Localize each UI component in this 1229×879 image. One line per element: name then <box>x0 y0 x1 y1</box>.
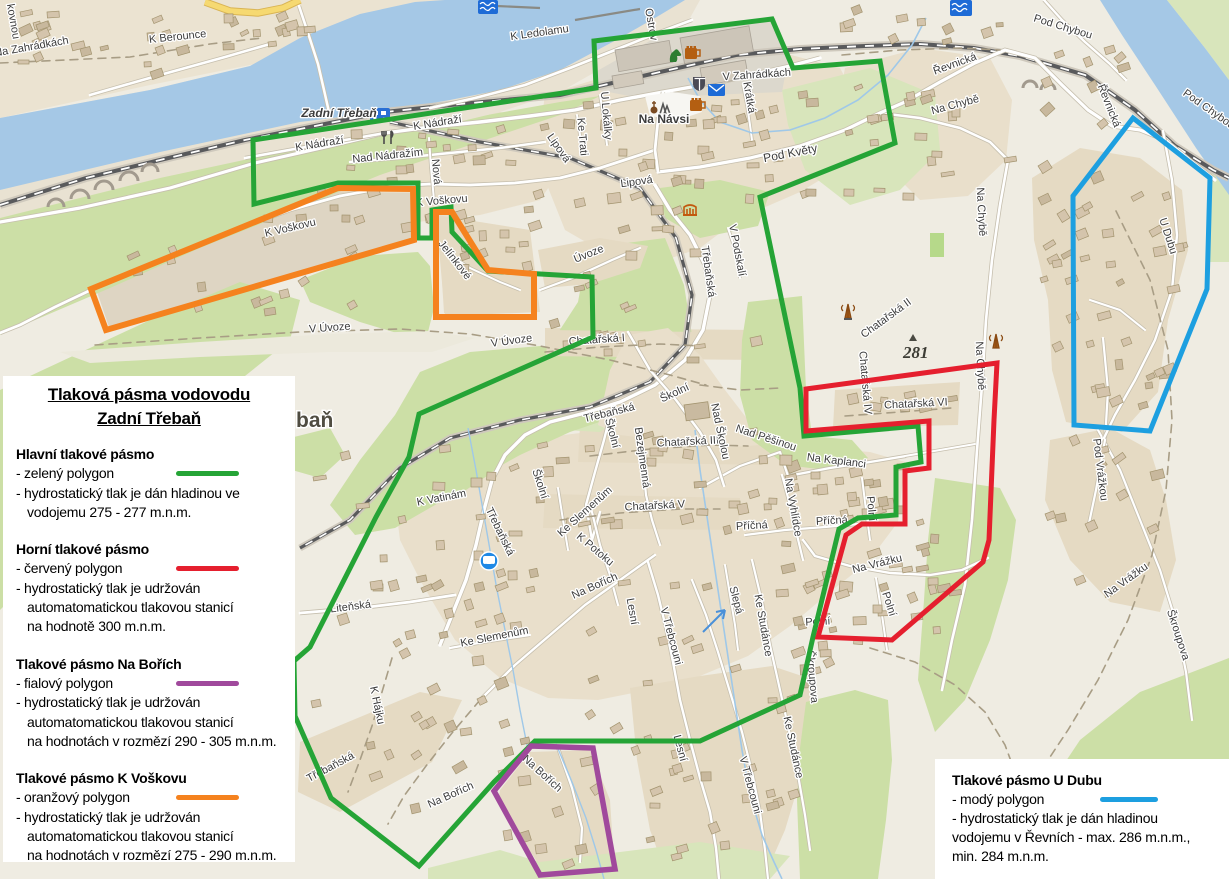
svg-text:baň: baň <box>296 409 333 432</box>
svg-text:Na Chybě: Na Chybě <box>974 187 989 236</box>
svg-text:Nová: Nová <box>429 158 443 186</box>
svg-text:281: 281 <box>902 343 929 362</box>
svg-text:Zadní Třebaň: Zadní Třebaň <box>300 106 376 120</box>
svg-text:Příčná: Příčná <box>736 519 769 533</box>
svg-text:Na Návsi: Na Návsi <box>639 112 690 126</box>
